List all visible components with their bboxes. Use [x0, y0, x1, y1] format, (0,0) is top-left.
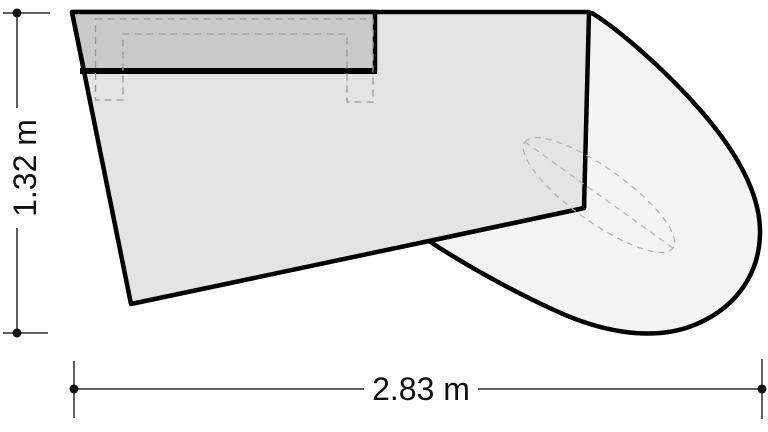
width-dimension-dot-left	[70, 385, 79, 394]
top-panel-shape	[72, 12, 375, 71]
height-dimension-dot-top	[13, 9, 22, 18]
furniture-drawing-svg: 1.32 m 2.83 m	[0, 0, 768, 432]
width-dimension-dot-right	[758, 385, 767, 394]
width-dimension-label: 2.83 m	[372, 371, 470, 407]
height-dimension: 1.32 m	[3, 9, 50, 338]
height-dimension-label: 1.32 m	[7, 119, 43, 217]
height-dimension-dot-bottom	[13, 329, 22, 338]
width-dimension: 2.83 m	[70, 359, 767, 419]
technical-drawing-canvas: 1.32 m 2.83 m	[0, 0, 768, 432]
